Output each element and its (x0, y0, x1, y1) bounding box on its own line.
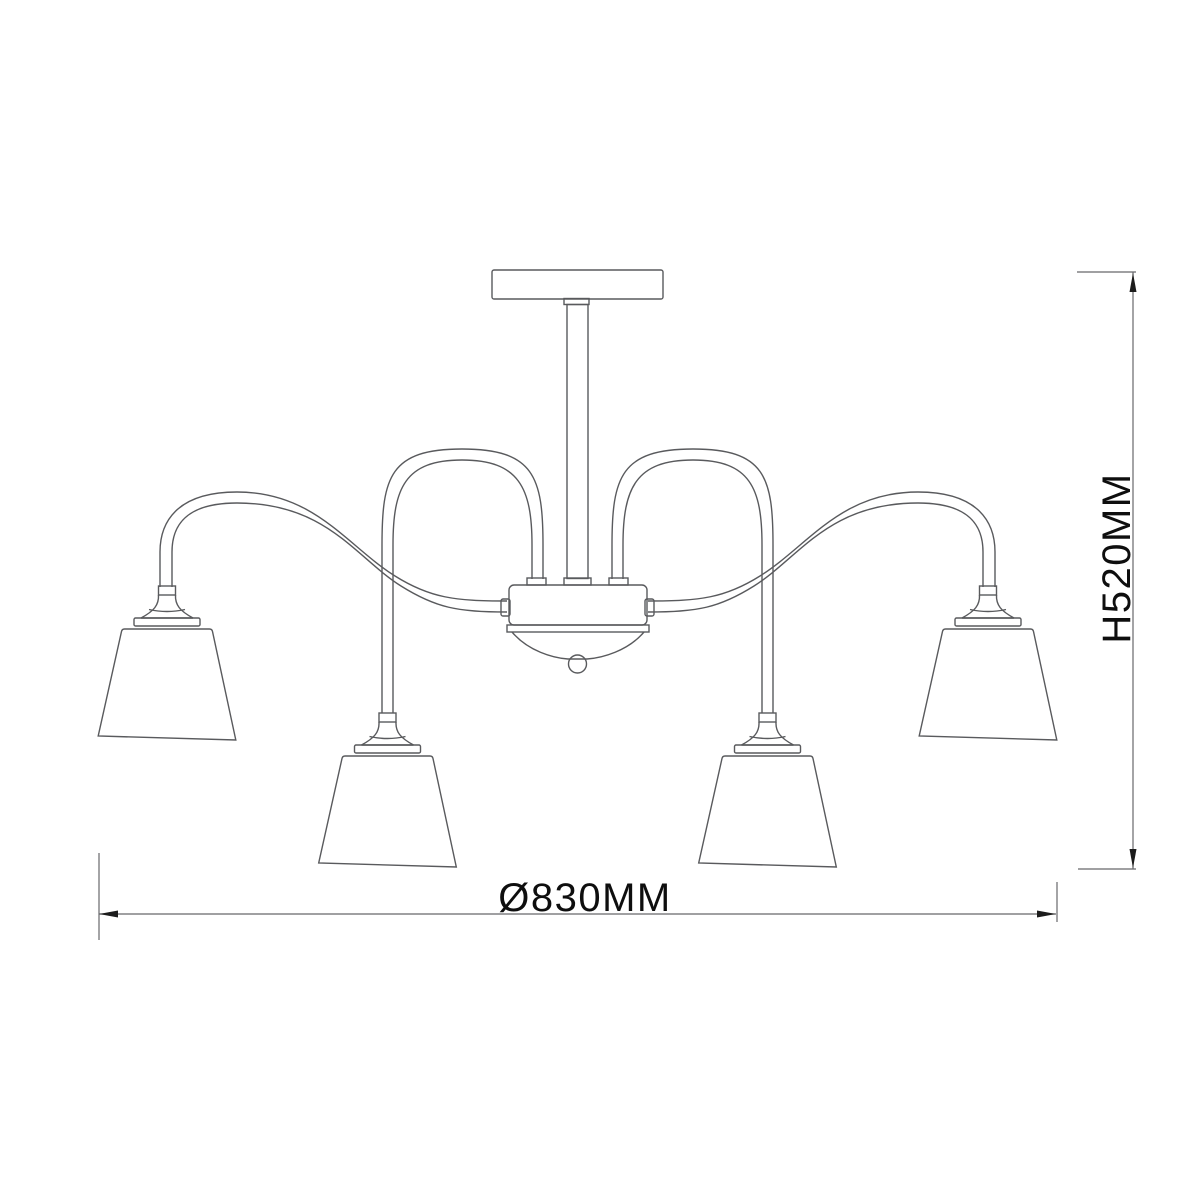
width-dimension: Ø830MM (99, 853, 1057, 940)
center-stem (567, 305, 588, 579)
center-body (509, 585, 647, 625)
inner-left-arm-collar (527, 578, 546, 585)
arm-tube-outer-line (648, 492, 995, 601)
arm-tube-outer-line (382, 449, 543, 713)
body-bottom-band (507, 625, 649, 632)
arm-tube-inner-line (172, 503, 507, 612)
lamp-unit-outer-left (98, 586, 236, 740)
lamp-unit-inner-right (699, 713, 837, 867)
outer-left-arm (160, 492, 507, 612)
finial-ball (569, 655, 587, 673)
lamp-unit-inner-left (319, 713, 457, 867)
height-dimension: H520MM (1077, 272, 1139, 869)
height-label: H520MM (1095, 472, 1139, 643)
lamp-unit-outer-right (919, 586, 1057, 740)
inner-left-arm (382, 449, 543, 713)
arm-tube-outer-line (160, 492, 507, 601)
drawing-canvas: Ø830MM H520MM (0, 0, 1200, 1200)
diameter-label: Ø830MM (498, 876, 672, 920)
inner-right-arm-collar (609, 578, 628, 585)
fixture (98, 270, 1057, 867)
technical-drawing: Ø830MM H520MM (0, 0, 1200, 1200)
arrowhead-down (1130, 849, 1137, 868)
arrowhead-left (99, 911, 118, 918)
outer-right-arm (648, 492, 995, 612)
arm-tube-inner-line (648, 503, 983, 612)
arm-tube-outer-line (612, 449, 773, 713)
inner-right-arm (612, 449, 773, 713)
ceiling-canopy-plate (492, 270, 663, 299)
arrowhead-up (1130, 273, 1137, 292)
arrowhead-right (1037, 911, 1056, 918)
